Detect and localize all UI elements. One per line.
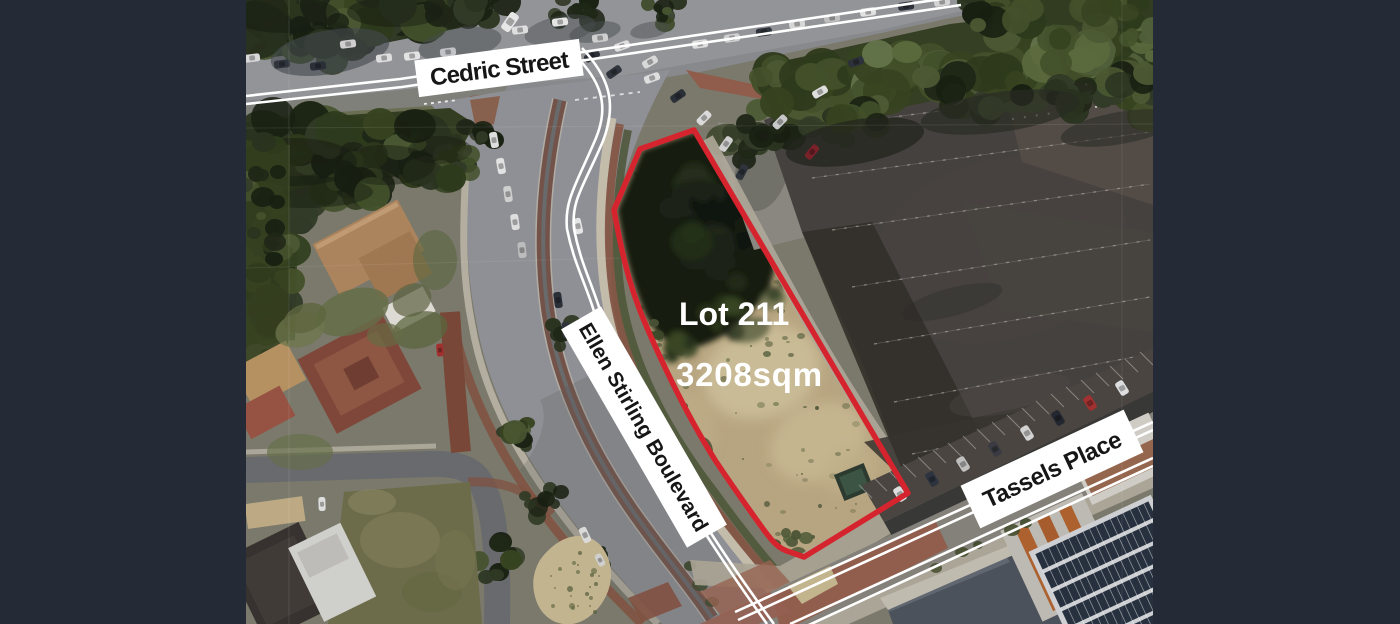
svg-text:3208sqm: 3208sqm (676, 356, 823, 393)
svg-text:Lot 211: Lot 211 (679, 296, 789, 332)
